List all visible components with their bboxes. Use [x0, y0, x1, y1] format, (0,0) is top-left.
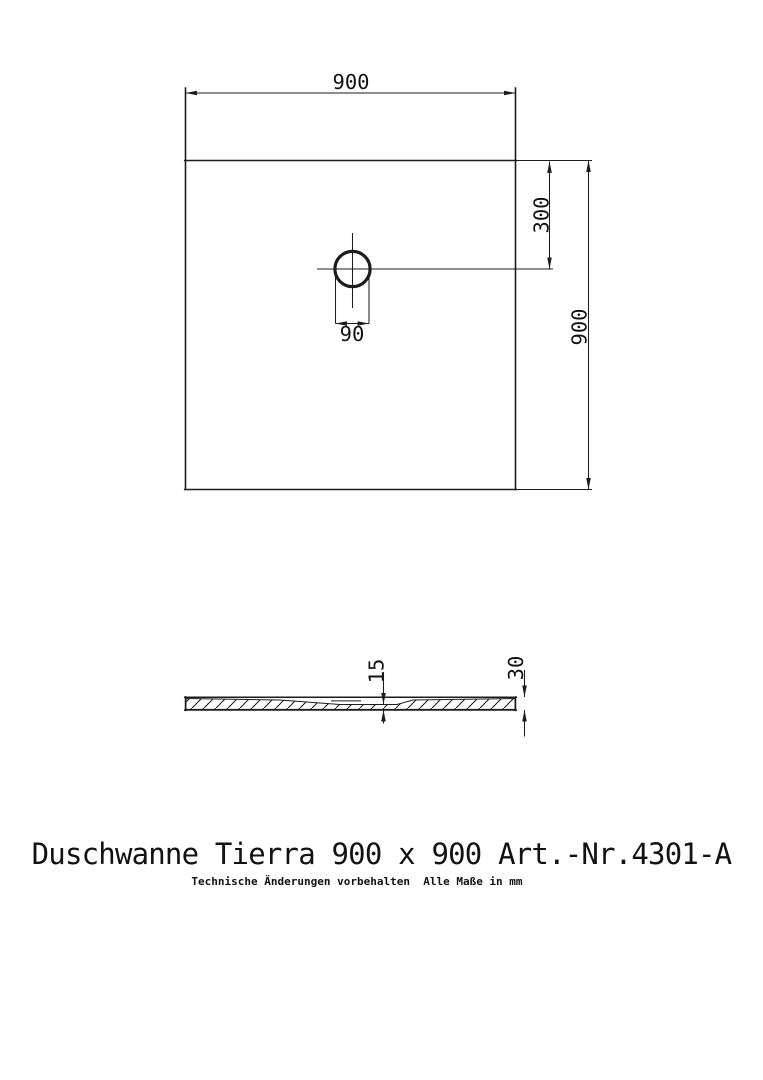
- arrowhead-up-icon: [381, 710, 386, 722]
- arrowhead-down-icon: [522, 686, 527, 698]
- dim-center-thickness-label: 15: [365, 659, 389, 684]
- dim-drain-offset-label: 300: [530, 196, 554, 233]
- technical-drawing-canvas: 900 90 300: [0, 0, 763, 1080]
- drawing-disclaimer: Technische Änderungen vorbehalten Alle M…: [0, 875, 714, 888]
- arrowhead-down-icon: [547, 258, 552, 270]
- section-view: 15 30: [185, 656, 528, 737]
- dim-edge-thickness: 30: [504, 656, 528, 737]
- dim-drain-offset: 300: [530, 162, 554, 270]
- arrowhead-up-icon: [586, 161, 591, 173]
- dim-edge-thickness-label: 30: [504, 656, 528, 681]
- arrowhead-down-icon: [381, 693, 386, 705]
- dim-center-thickness: 15: [365, 659, 389, 724]
- section-material-hatch: [186, 699, 515, 710]
- drawing-sheet: 900 90 300: [0, 0, 763, 1080]
- dim-width: 900: [186, 70, 516, 95]
- arrowhead-left-icon: [186, 91, 198, 96]
- drawing-title: Duschwanne Tierra 900 x 900 Art.-Nr.4301…: [0, 839, 763, 869]
- dim-height-label: 900: [568, 308, 592, 345]
- arrowhead-right-icon: [504, 91, 516, 96]
- arrowhead-up-icon: [522, 710, 527, 722]
- dim-drain-diameter: 90: [336, 321, 370, 346]
- dim-height: 900: [568, 161, 592, 490]
- arrowhead-up-icon: [547, 162, 552, 174]
- dim-drain-diameter-label: 90: [340, 322, 365, 346]
- arrowhead-down-icon: [586, 478, 591, 490]
- top-view: 900 90 300: [185, 70, 592, 490]
- dim-width-label: 900: [332, 70, 369, 94]
